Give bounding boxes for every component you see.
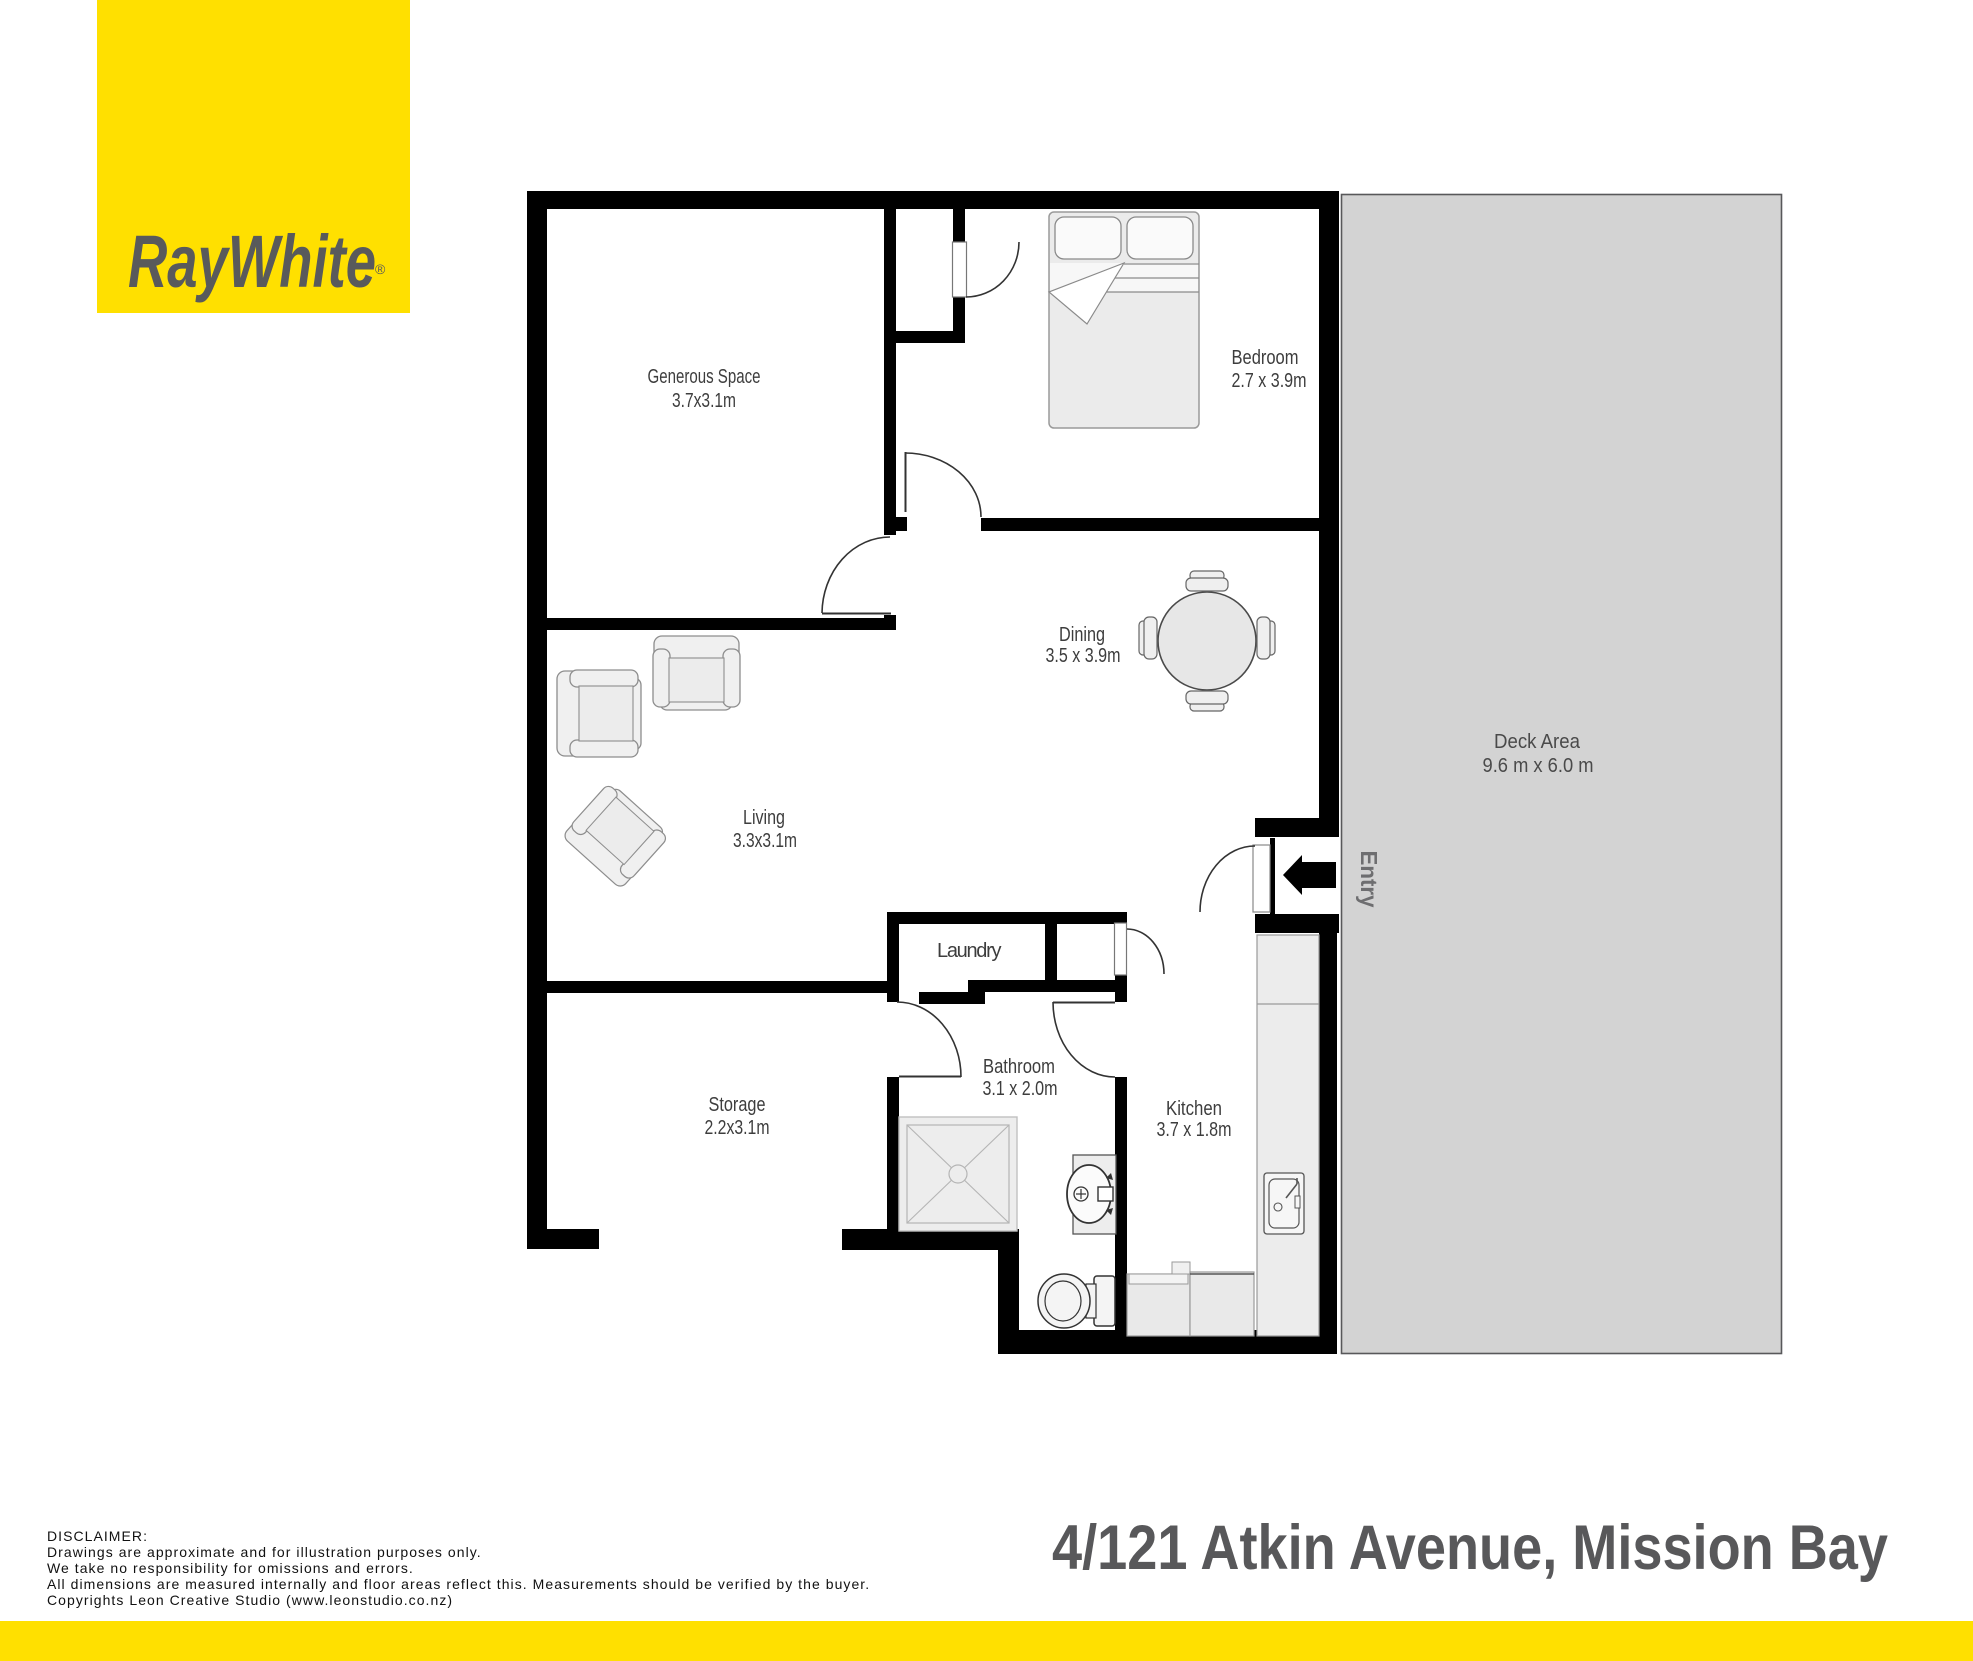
svg-text:Drawings are approximate and f: Drawings are approximate and for illustr… bbox=[47, 1544, 482, 1560]
svg-text:3.1 x 2.0m: 3.1 x 2.0m bbox=[983, 1078, 1058, 1100]
svg-text:Bedroom: Bedroom bbox=[1232, 347, 1299, 369]
svg-text:4/121 Atkin Avenue, Mission Ba: 4/121 Atkin Avenue, Mission Bay bbox=[1052, 1513, 1888, 1583]
svg-text:Entry: Entry bbox=[1356, 851, 1382, 908]
svg-text:Copyrights Leon Creative Studi: Copyrights Leon Creative Studio (www.leo… bbox=[47, 1592, 453, 1608]
svg-text:Kitchen: Kitchen bbox=[1166, 1098, 1222, 1120]
svg-text:®: ® bbox=[375, 261, 386, 277]
svg-text:RayWhite: RayWhite bbox=[128, 220, 376, 303]
svg-text:2.7 x 3.9m: 2.7 x 3.9m bbox=[1232, 370, 1307, 392]
svg-text:We take no responsibility for: We take no responsibility for omissions … bbox=[47, 1560, 414, 1576]
svg-text:Bathroom: Bathroom bbox=[983, 1056, 1055, 1078]
svg-text:2.2x3.1m: 2.2x3.1m bbox=[705, 1117, 770, 1139]
svg-text:3.7x3.1m: 3.7x3.1m bbox=[672, 390, 736, 412]
svg-text:Laundry: Laundry bbox=[937, 940, 1003, 962]
svg-text:3.5 x 3.9m: 3.5 x 3.9m bbox=[1046, 645, 1121, 667]
svg-text:9.6 m x 6.0 m: 9.6 m x 6.0 m bbox=[1483, 755, 1594, 777]
svg-text:Generous Space: Generous Space bbox=[648, 366, 761, 388]
svg-text:Living: Living bbox=[743, 807, 785, 829]
svg-text:Storage: Storage bbox=[709, 1094, 766, 1116]
svg-text:Deck Area: Deck Area bbox=[1494, 731, 1581, 753]
svg-text:3.3x3.1m: 3.3x3.1m bbox=[733, 830, 797, 852]
svg-text:DISCLAIMER:: DISCLAIMER: bbox=[47, 1528, 148, 1544]
svg-text:3.7 x 1.8m: 3.7 x 1.8m bbox=[1157, 1119, 1232, 1141]
svg-text:Dining: Dining bbox=[1059, 624, 1105, 646]
svg-text:All dimensions are measured in: All dimensions are measured internally a… bbox=[47, 1576, 870, 1592]
